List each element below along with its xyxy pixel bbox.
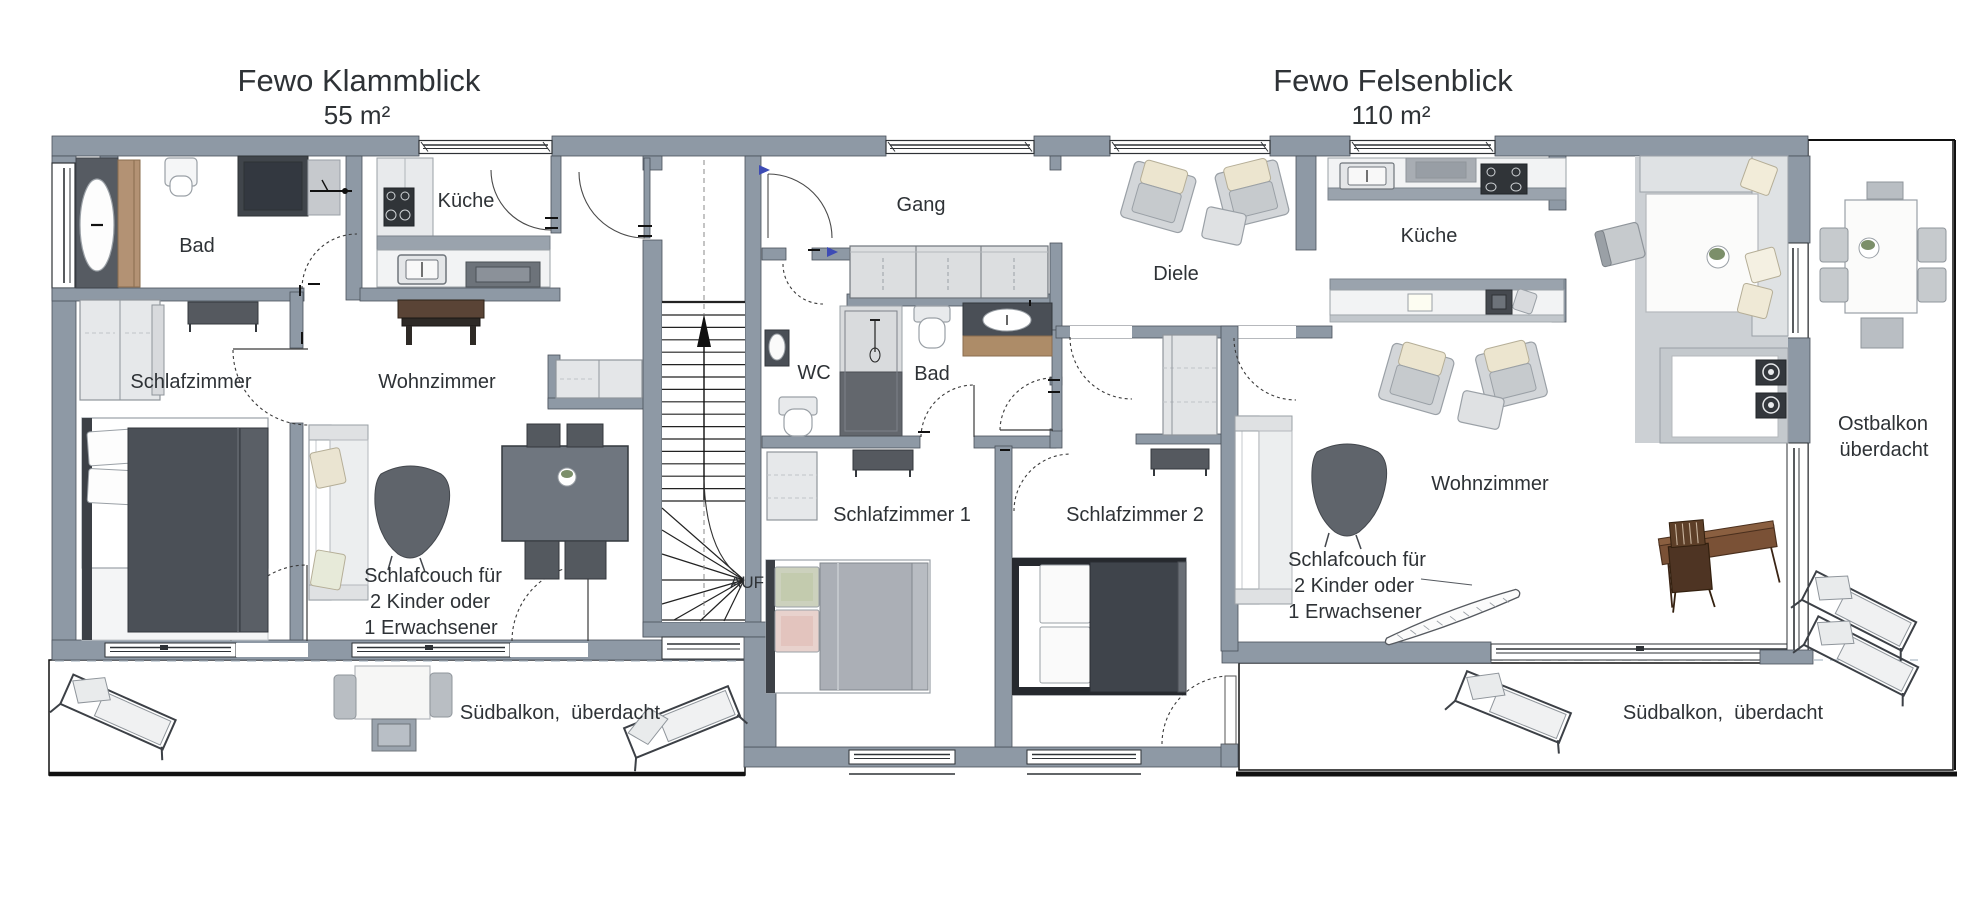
svg-text:Ostbalkon: Ostbalkon [1838, 413, 1928, 435]
svg-text:Küche: Küche [438, 190, 495, 212]
svg-text:Küche: Küche [1401, 225, 1458, 247]
svg-text:Südbalkon, überdacht: Südbalkon, überdacht [460, 702, 661, 724]
svg-text:WC: WC [797, 362, 830, 384]
svg-text:110 m²: 110 m² [1352, 100, 1431, 130]
svg-text:Schlafcouch für: Schlafcouch für [364, 565, 502, 587]
svg-text:Gang: Gang [897, 194, 946, 216]
svg-text:1 Erwachsener: 1 Erwachsener [1288, 601, 1422, 623]
svg-text:1 Erwachsener: 1 Erwachsener [364, 617, 498, 639]
svg-text:Wohnzimmer: Wohnzimmer [1431, 473, 1549, 495]
svg-text:Bad: Bad [179, 235, 215, 257]
svg-text:Schlafzimmer 2: Schlafzimmer 2 [1066, 504, 1204, 526]
svg-text:Schlafzimmer: Schlafzimmer [130, 371, 251, 393]
svg-text:überdacht: überdacht [1840, 439, 1929, 461]
svg-text:Bad: Bad [914, 363, 950, 385]
svg-text:Schlafzimmer 1: Schlafzimmer 1 [833, 504, 971, 526]
svg-text:Fewo Felsenblick: Fewo Felsenblick [1273, 63, 1513, 98]
svg-text:2 Kinder oder: 2 Kinder oder [370, 591, 490, 613]
svg-text:Fewo Klammblick: Fewo Klammblick [238, 63, 481, 98]
svg-text:Diele: Diele [1153, 263, 1199, 285]
svg-text:55 m²: 55 m² [324, 100, 391, 130]
svg-text:2 Kinder oder: 2 Kinder oder [1294, 575, 1414, 597]
svg-text:AUF: AUF [730, 573, 764, 592]
svg-text:Südbalkon, überdacht: Südbalkon, überdacht [1623, 702, 1824, 724]
svg-text:Schlafcouch für: Schlafcouch für [1288, 549, 1426, 571]
svg-text:Wohnzimmer: Wohnzimmer [378, 371, 496, 393]
